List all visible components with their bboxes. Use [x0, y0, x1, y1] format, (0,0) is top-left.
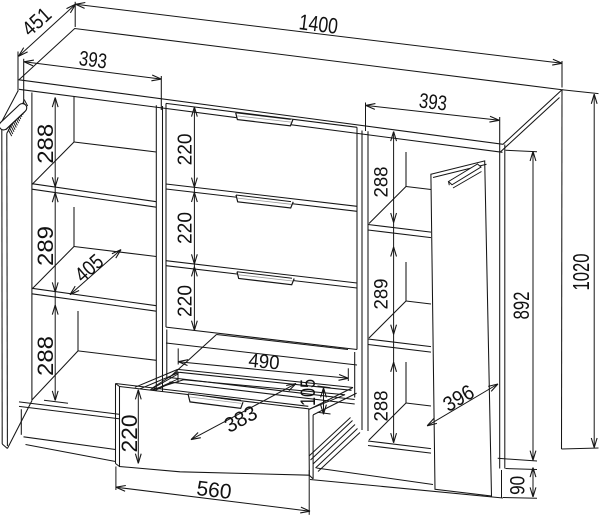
svg-text:1400: 1400: [298, 9, 340, 39]
svg-text:90: 90: [506, 476, 529, 495]
svg-text:105: 105: [296, 379, 320, 406]
svg-text:220: 220: [117, 415, 142, 453]
svg-text:288: 288: [370, 391, 392, 422]
svg-text:393: 393: [78, 47, 109, 73]
svg-text:220: 220: [173, 133, 196, 165]
svg-text:288: 288: [33, 336, 58, 376]
svg-text:490: 490: [248, 350, 281, 375]
svg-text:289: 289: [33, 226, 58, 266]
svg-text:220: 220: [173, 212, 196, 244]
svg-text:288: 288: [370, 167, 392, 198]
svg-text:1020: 1020: [568, 254, 594, 291]
svg-text:393: 393: [418, 90, 448, 116]
svg-text:892: 892: [509, 292, 534, 320]
svg-text:560: 560: [195, 477, 233, 504]
svg-text:289: 289: [370, 279, 392, 310]
svg-text:220: 220: [173, 285, 196, 317]
svg-text:288: 288: [33, 124, 58, 164]
